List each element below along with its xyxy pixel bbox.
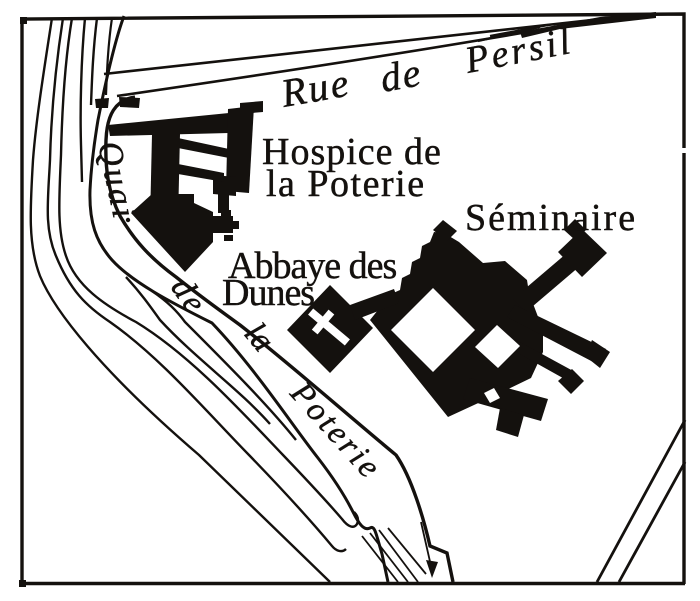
svg-text:la Poterie: la Poterie xyxy=(266,163,426,205)
svg-text:Séminaire: Séminaire xyxy=(465,197,637,239)
svg-text:de: de xyxy=(377,49,426,101)
svg-text:Dunes: Dunes xyxy=(222,272,314,314)
